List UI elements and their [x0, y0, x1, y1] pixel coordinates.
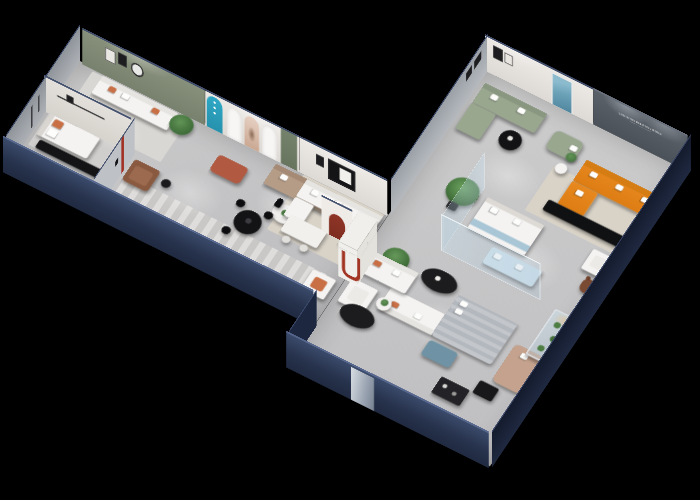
- table-plant: [379, 298, 390, 307]
- framed-art: [474, 51, 481, 70]
- pillow: [45, 128, 58, 139]
- pillow: [454, 308, 464, 316]
- art-canvas: [340, 168, 351, 186]
- framed-art: [466, 65, 472, 82]
- red-stripe-art: [121, 135, 123, 173]
- showroom-render: LIVE IN THE BEAUTIFUL WORLD ENJOY YOUR H…: [0, 0, 700, 500]
- wall-shelf: [38, 95, 39, 113]
- table-decor: [434, 275, 441, 281]
- pillow: [575, 189, 585, 197]
- orange-cushion: [51, 119, 64, 130]
- mirror-panel: [351, 367, 374, 411]
- logo-mark: [115, 157, 118, 167]
- seat-cushion: [128, 165, 154, 187]
- table-decor: [244, 217, 253, 224]
- framed-art: [493, 45, 502, 62]
- small-framed-art: [316, 154, 324, 168]
- pillow: [569, 144, 579, 152]
- pillow: [459, 300, 469, 308]
- shelf-decor: [451, 391, 457, 397]
- framed-art: [118, 52, 127, 68]
- table-decor: [506, 135, 513, 141]
- shelf-decor: [442, 383, 448, 389]
- framed-art: [105, 47, 115, 65]
- shelf-decor: [67, 94, 74, 104]
- black-frame-art: [328, 158, 355, 192]
- framed-art: [505, 52, 513, 66]
- pillow: [413, 312, 423, 320]
- wall-shelf: [31, 105, 32, 128]
- round-mirror: [131, 60, 144, 79]
- bear-ear: [585, 275, 591, 281]
